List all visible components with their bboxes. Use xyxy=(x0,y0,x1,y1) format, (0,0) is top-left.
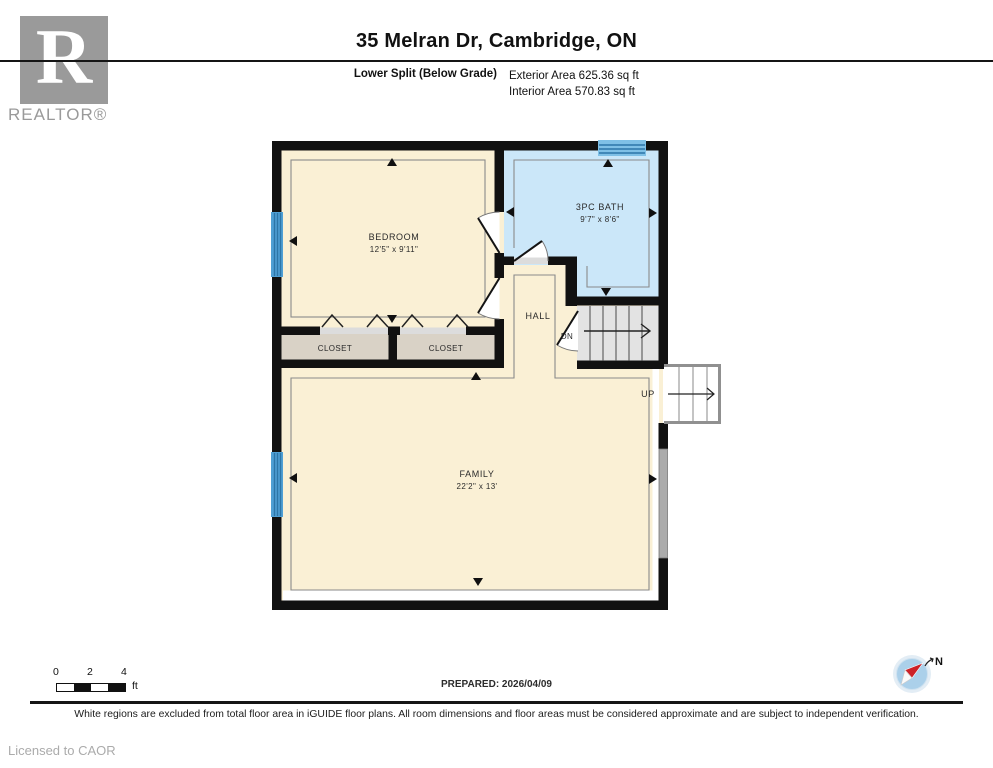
bedroom-dims: 12'5" x 9'11" xyxy=(370,245,418,254)
hall-label: HALL xyxy=(526,311,551,321)
bath-label: 3PC BATH xyxy=(576,202,624,212)
prepared-date: PREPARED: 2026/04/09 xyxy=(0,679,993,690)
disclaimer-text: White regions are excluded from total fl… xyxy=(0,709,993,720)
stairs-up-label: UP xyxy=(641,389,655,399)
realtor-logo-letter: R xyxy=(36,18,92,96)
floor-plan: BEDROOM 12'5" x 9'11" 3PC BATH 9'7" x 8'… xyxy=(0,0,993,768)
closet-left-label: CLOSET xyxy=(318,344,352,353)
title-divider xyxy=(0,60,993,62)
compass-north-label: N xyxy=(935,656,943,668)
family-dims: 22'2" x 13' xyxy=(457,482,498,491)
bedroom-window xyxy=(271,212,283,277)
bath-window xyxy=(598,140,646,156)
stairs-up xyxy=(664,366,720,423)
realtor-wordmark: REALTOR® xyxy=(8,105,107,125)
compass-icon: N xyxy=(885,645,955,697)
closet-right-label: CLOSET xyxy=(429,344,463,353)
patio-door xyxy=(659,449,668,558)
scale-tick-4: 4 xyxy=(121,666,127,678)
scale-tick-0: 0 xyxy=(53,666,59,678)
family-window xyxy=(271,452,283,517)
scale-tick-2: 2 xyxy=(87,666,93,678)
bath-dims: 9'7" x 8'6" xyxy=(580,215,619,224)
footer-divider xyxy=(30,701,963,704)
license-text: Licensed to CAOR xyxy=(8,743,116,758)
bedroom-label: BEDROOM xyxy=(369,232,420,242)
family-label: FAMILY xyxy=(460,469,495,479)
